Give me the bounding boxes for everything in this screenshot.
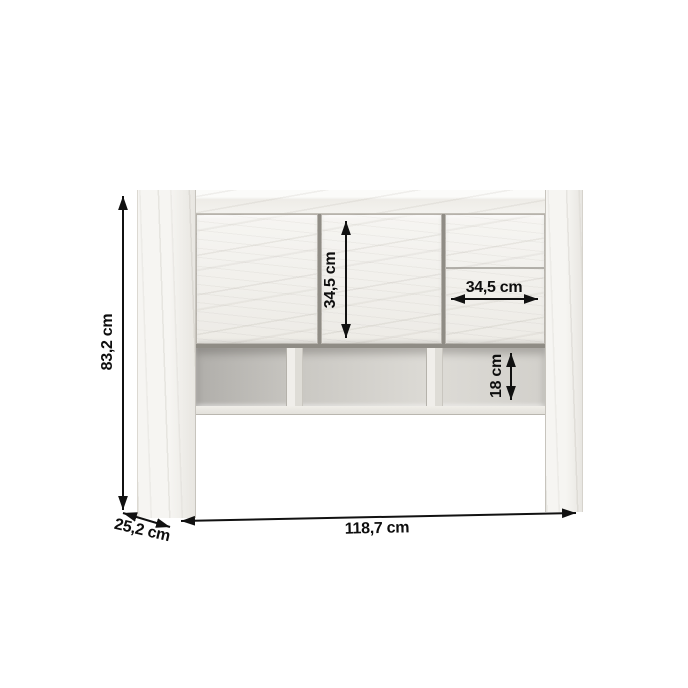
shelf-divider-2 xyxy=(426,348,443,406)
furniture-top-panel xyxy=(137,190,583,214)
furniture-left-post xyxy=(137,190,196,518)
drawer-width-label: 34,5 cm xyxy=(466,279,523,297)
shelf-bottom-board xyxy=(196,406,545,415)
shelf-opening-height-label: 18 cm xyxy=(488,354,506,398)
door-left xyxy=(196,214,318,344)
shelf-divider-1 xyxy=(286,348,303,406)
overall-width-label: 118,7 cm xyxy=(345,519,410,538)
furniture-right-post xyxy=(545,190,583,512)
door-height-label: 34,5 cm xyxy=(322,252,340,309)
overall-height-label: 83,2 cm xyxy=(99,314,117,371)
drawer-split-line xyxy=(446,267,544,269)
product-dimension-diagram: 83,2 cm 34,5 cm 34,5 cm 18 cm 118,7 cm 2… xyxy=(0,0,688,688)
depth-label: 25,2 cm xyxy=(112,516,171,546)
